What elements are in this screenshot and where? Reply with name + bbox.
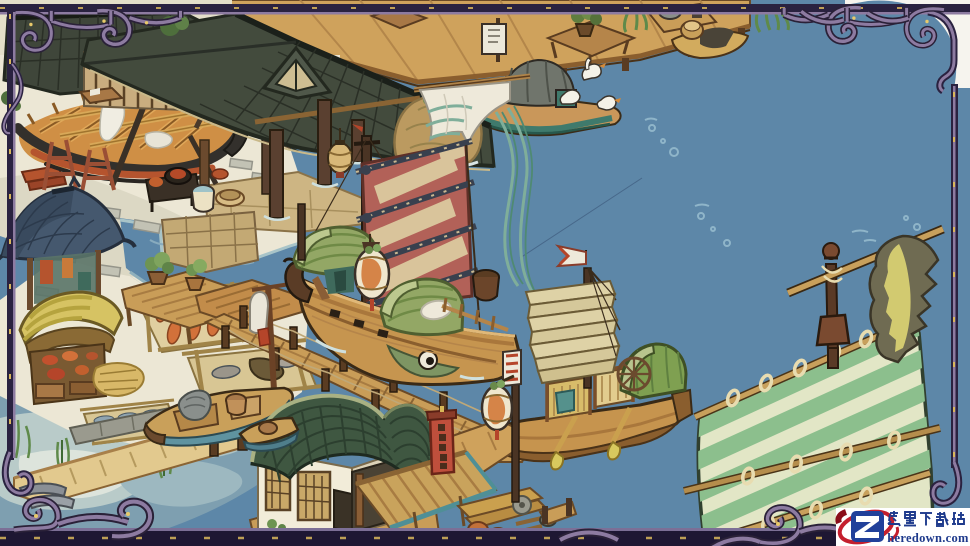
svg-text:heredown.com: heredown.com xyxy=(887,531,969,545)
